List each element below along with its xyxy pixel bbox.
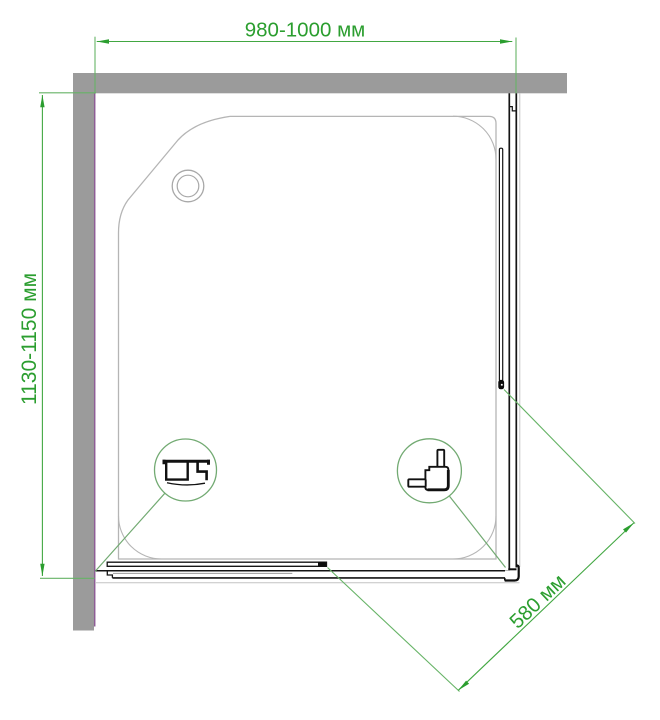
svg-text:1130-1150 мм: 1130-1150 мм <box>18 273 41 405</box>
svg-text:980-1000 мм: 980-1000 мм <box>245 19 366 42</box>
